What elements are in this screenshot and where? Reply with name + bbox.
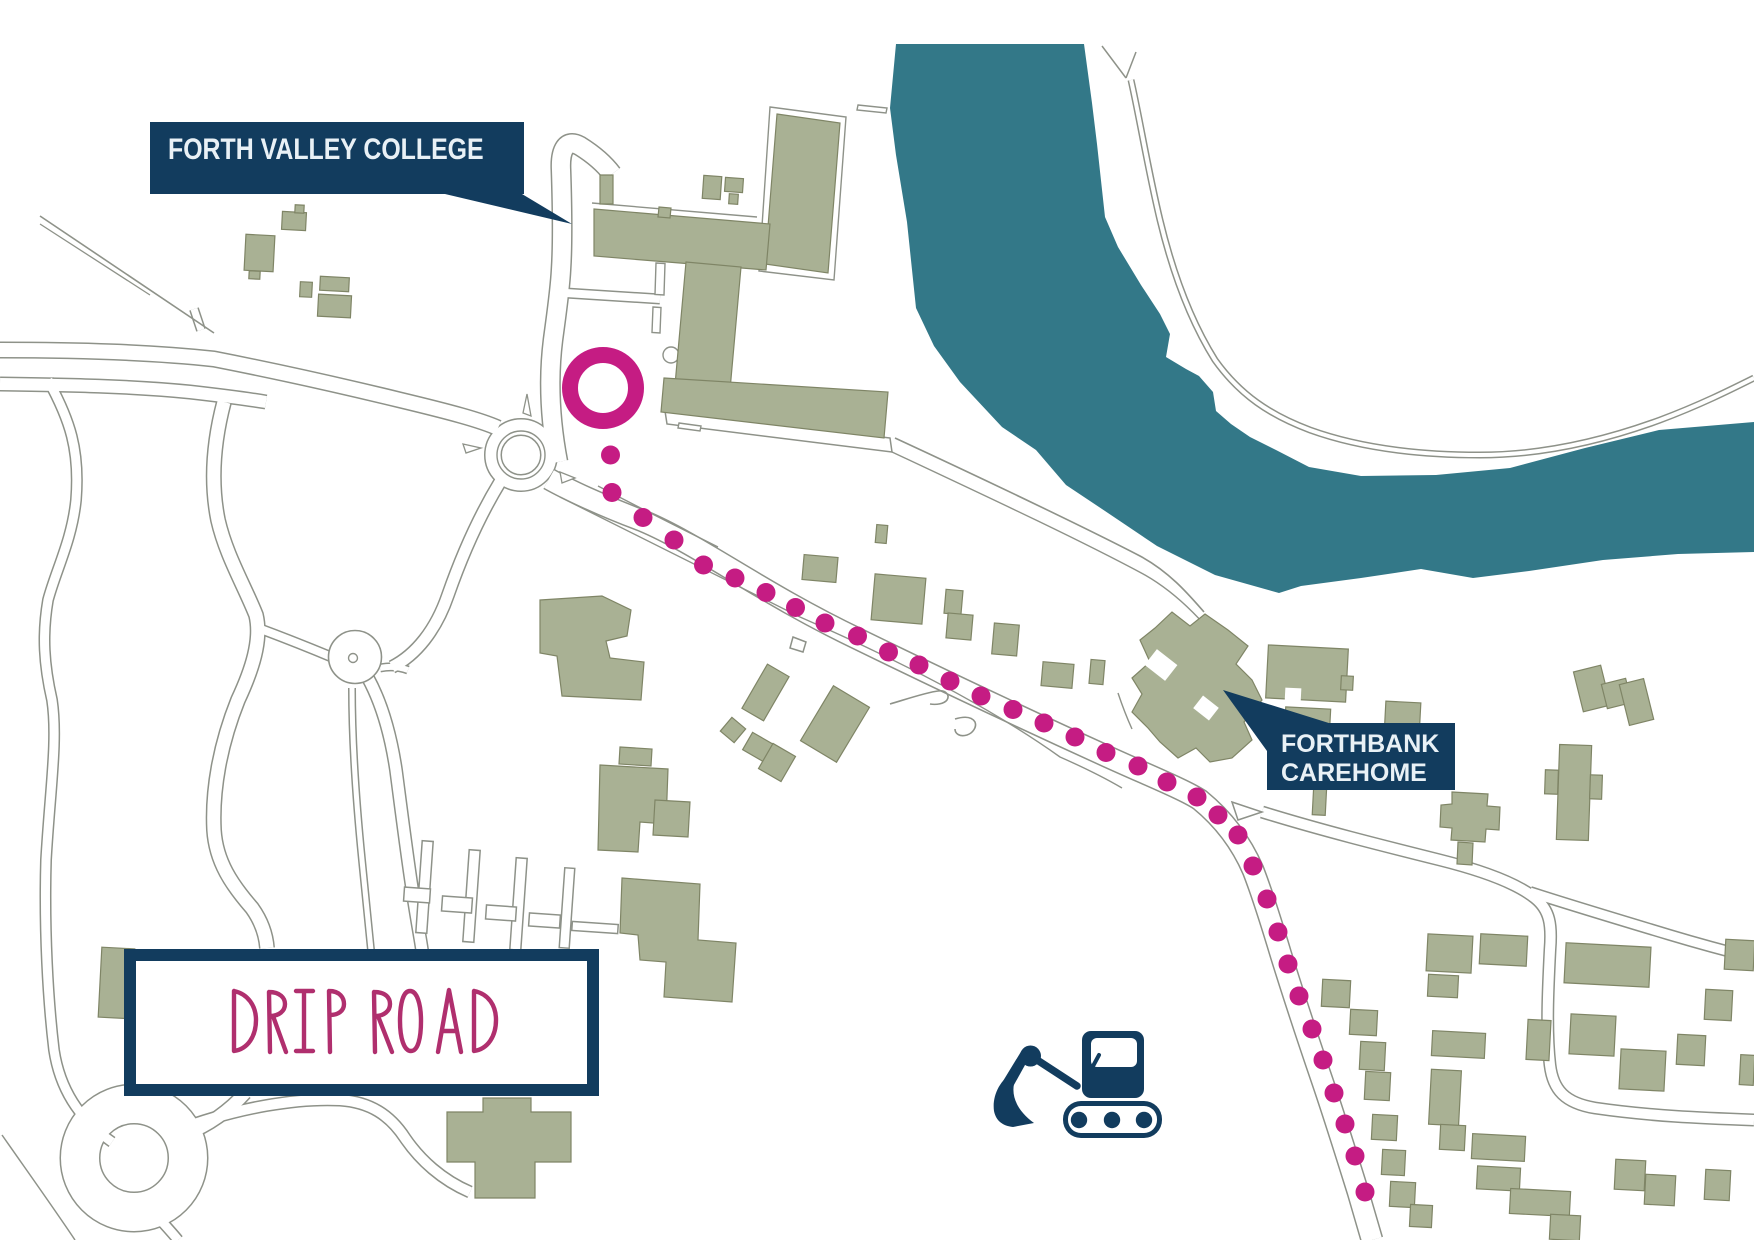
svg-text:FORTHBANK: FORTHBANK (1281, 730, 1439, 758)
svg-text:FORTH VALLEY COLLEGE: FORTH VALLEY COLLEGE (168, 132, 484, 166)
svg-text:CAREHOME: CAREHOME (1281, 759, 1427, 787)
